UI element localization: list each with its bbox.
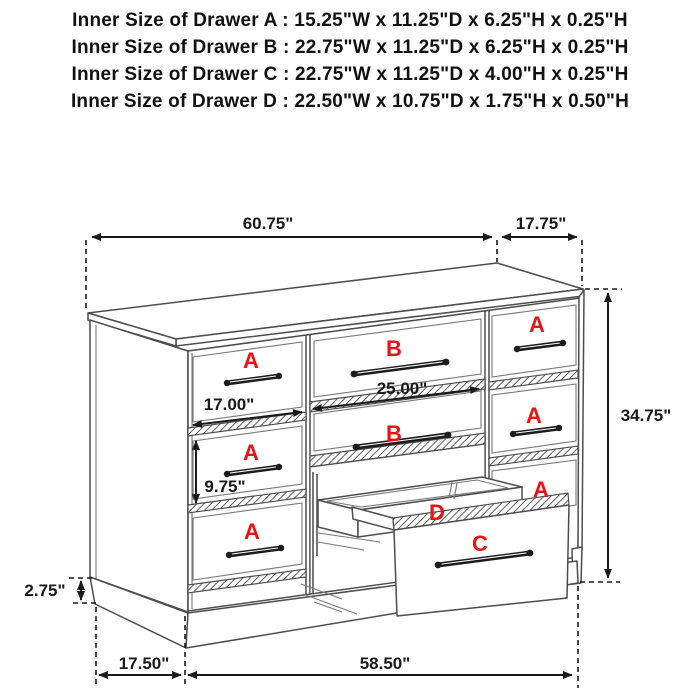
dimension-label-drawer-a-height: 9.75" bbox=[204, 477, 245, 496]
drawer-label-b: B bbox=[386, 336, 402, 361]
dimension-label-height: 34.75" bbox=[621, 406, 672, 425]
side-panel-left bbox=[90, 320, 188, 612]
dimension-height: 34.75" bbox=[608, 293, 671, 578]
dimension-top-width: 60.75" bbox=[92, 214, 492, 237]
dimension-front-width: 58.50" bbox=[188, 654, 572, 675]
dimension-label-base-height: 2.75" bbox=[24, 581, 65, 600]
drawer-label-a: A bbox=[529, 312, 545, 337]
drawer-label-b: B bbox=[386, 421, 402, 446]
drawer-label-a: A bbox=[533, 477, 549, 502]
dimension-label-drawer-b-width: 25.00" bbox=[377, 379, 428, 398]
right-edge bbox=[578, 290, 584, 554]
drawer-label-a: A bbox=[243, 348, 259, 373]
dimension-label-side-depth: 17.50" bbox=[119, 654, 170, 673]
dresser-dimension-diagram: 60.75" 17.75" 34.75" 17.00" 25.00" 9.75" bbox=[0, 0, 700, 700]
drawer-label-a: A bbox=[244, 519, 260, 544]
dimension-side-depth: 17.50" bbox=[99, 654, 181, 675]
dimension-top-depth: 17.75" bbox=[502, 214, 577, 237]
dimension-label-top-width: 60.75" bbox=[243, 214, 294, 233]
drawer-label-d: D bbox=[429, 500, 445, 525]
dimension-base-height: 2.75" bbox=[24, 581, 81, 600]
drawer-label-a: A bbox=[526, 403, 542, 428]
dimension-label-front-width: 58.50" bbox=[360, 654, 411, 673]
drawer-label-a: A bbox=[243, 440, 259, 465]
dimension-label-drawer-a-width: 17.00" bbox=[204, 395, 255, 414]
dimension-label-top-depth: 17.75" bbox=[516, 214, 567, 233]
drawer-label-c: C bbox=[472, 531, 488, 556]
